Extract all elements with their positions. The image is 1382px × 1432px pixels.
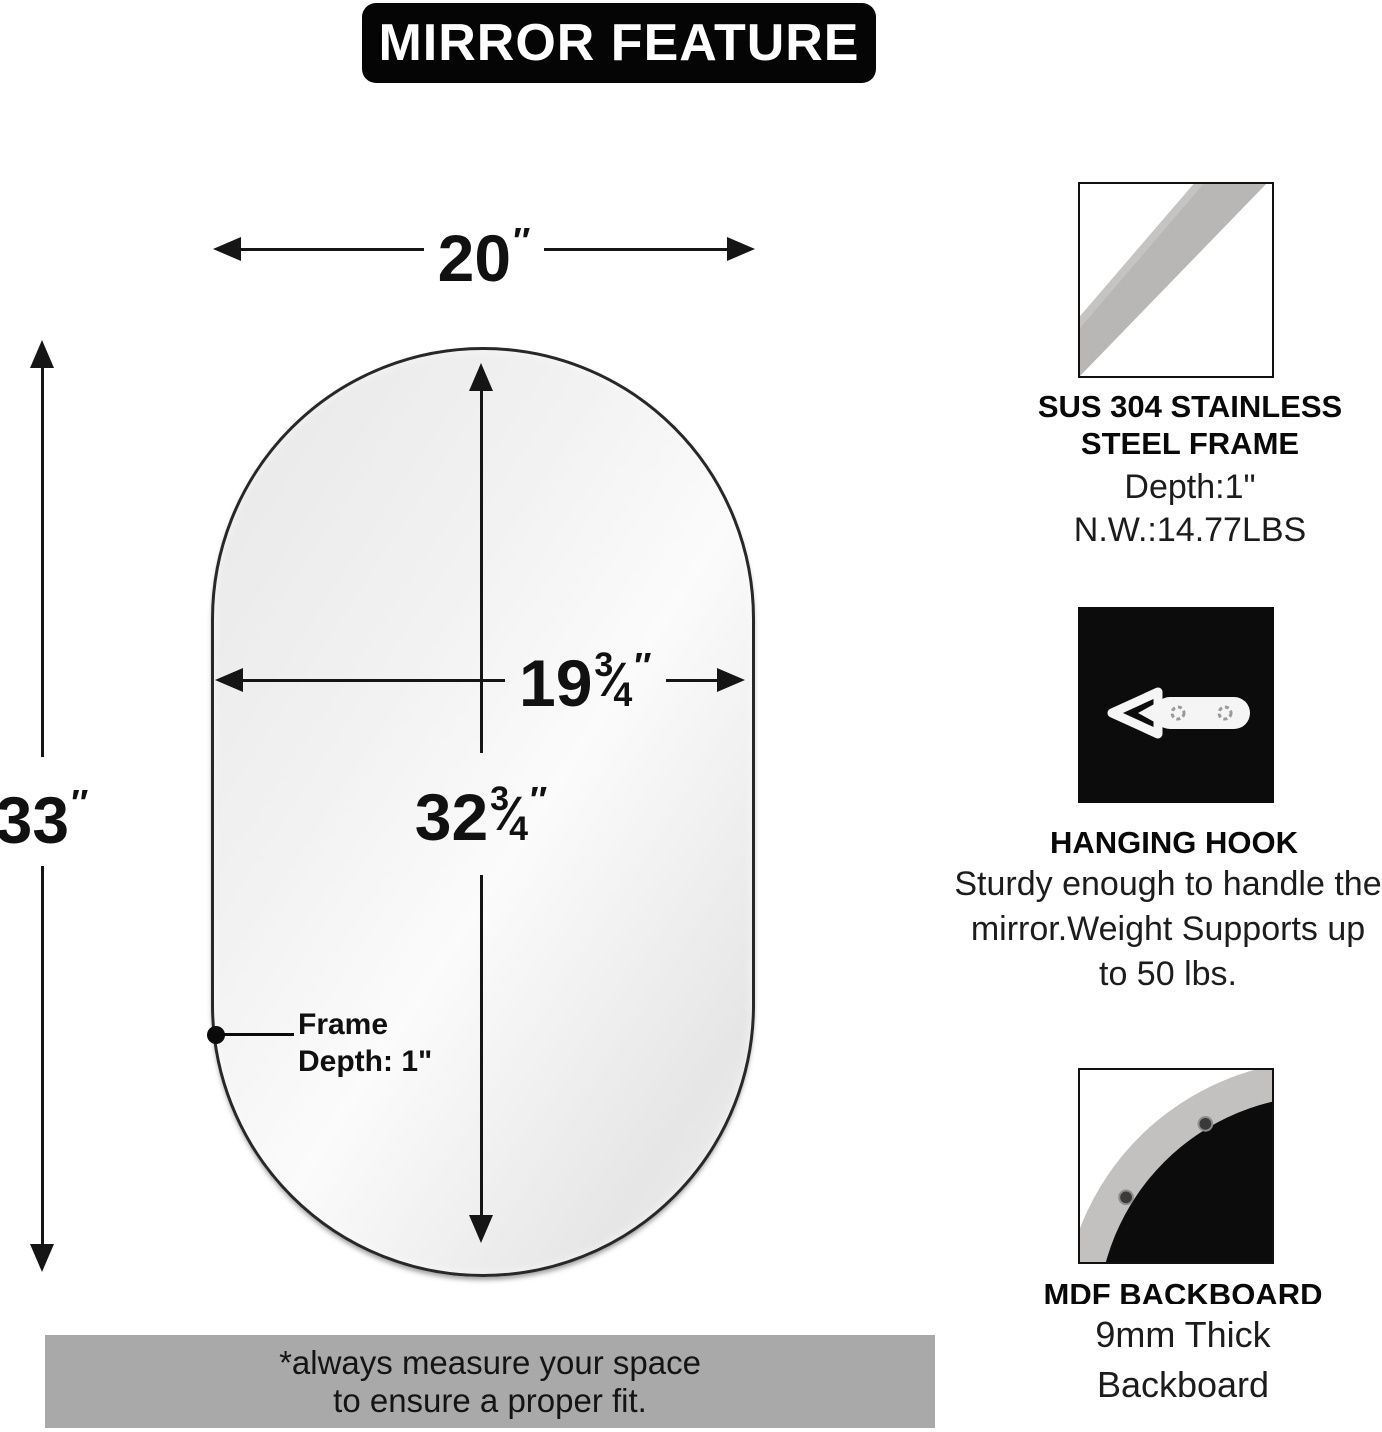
frame-depth-note: Frame Depth: 1" bbox=[298, 1006, 432, 1080]
stainless-band-image bbox=[1078, 182, 1274, 378]
dimension-inner-height: 323⁄4″ bbox=[406, 363, 556, 1243]
mirror-feature-infographic: MIRROR FEATURE 20″ 33″ 193⁄4″ 323⁄4″ bbox=[0, 0, 1382, 1432]
arrowhead-right-icon bbox=[727, 237, 755, 261]
dimension-line bbox=[241, 248, 424, 251]
outer-width-label: 20″ bbox=[438, 203, 531, 296]
arrowhead-up-icon bbox=[469, 363, 493, 391]
hook-graphic bbox=[1078, 607, 1274, 803]
inner-height-label: 323⁄4″ bbox=[415, 761, 548, 867]
backboard-description: 9mm Thick Backboard bbox=[1000, 1310, 1366, 1410]
title-banner: MIRROR FEATURE bbox=[362, 3, 876, 83]
arrowhead-up-icon bbox=[30, 340, 54, 368]
steel-frame-specs: Depth:1" N.W.:14.77LBS bbox=[1000, 466, 1380, 552]
dimension-line bbox=[41, 368, 44, 757]
arrowhead-down-icon bbox=[469, 1215, 493, 1243]
dimension-outer-height: 33″ bbox=[2, 340, 82, 1272]
arrowhead-left-icon bbox=[215, 668, 243, 692]
dimension-line bbox=[666, 679, 717, 682]
backboard-title: MDF BACKBOARD bbox=[1000, 1279, 1366, 1304]
arrowhead-left-icon bbox=[213, 237, 241, 261]
outer-height-label: 33″ bbox=[0, 765, 88, 858]
hanging-hook-image bbox=[1078, 607, 1274, 803]
measure-space-note: *always measure your space to ensure a p… bbox=[45, 1335, 935, 1428]
page-title: MIRROR FEATURE bbox=[378, 13, 859, 73]
steel-frame-title: SUS 304 STAINLESS STEEL FRAME bbox=[1000, 388, 1380, 462]
backboard-corner-image bbox=[1078, 1068, 1274, 1264]
hanging-hook-title: HANGING HOOK bbox=[984, 824, 1364, 861]
dimension-line bbox=[41, 866, 44, 1244]
arrowhead-right-icon bbox=[717, 668, 745, 692]
dimension-line bbox=[480, 391, 483, 753]
dimension-outer-width: 20″ bbox=[213, 211, 755, 287]
frame-depth-leader-line bbox=[222, 1033, 294, 1036]
arrowhead-down-icon bbox=[30, 1244, 54, 1272]
dimension-line bbox=[544, 248, 727, 251]
backboard-graphic bbox=[1080, 1070, 1272, 1262]
hanging-hook-description: Sturdy enough to handle the mirror.Weigh… bbox=[948, 862, 1382, 997]
steel-band-graphic bbox=[1080, 184, 1272, 376]
dimension-line bbox=[480, 875, 483, 1215]
